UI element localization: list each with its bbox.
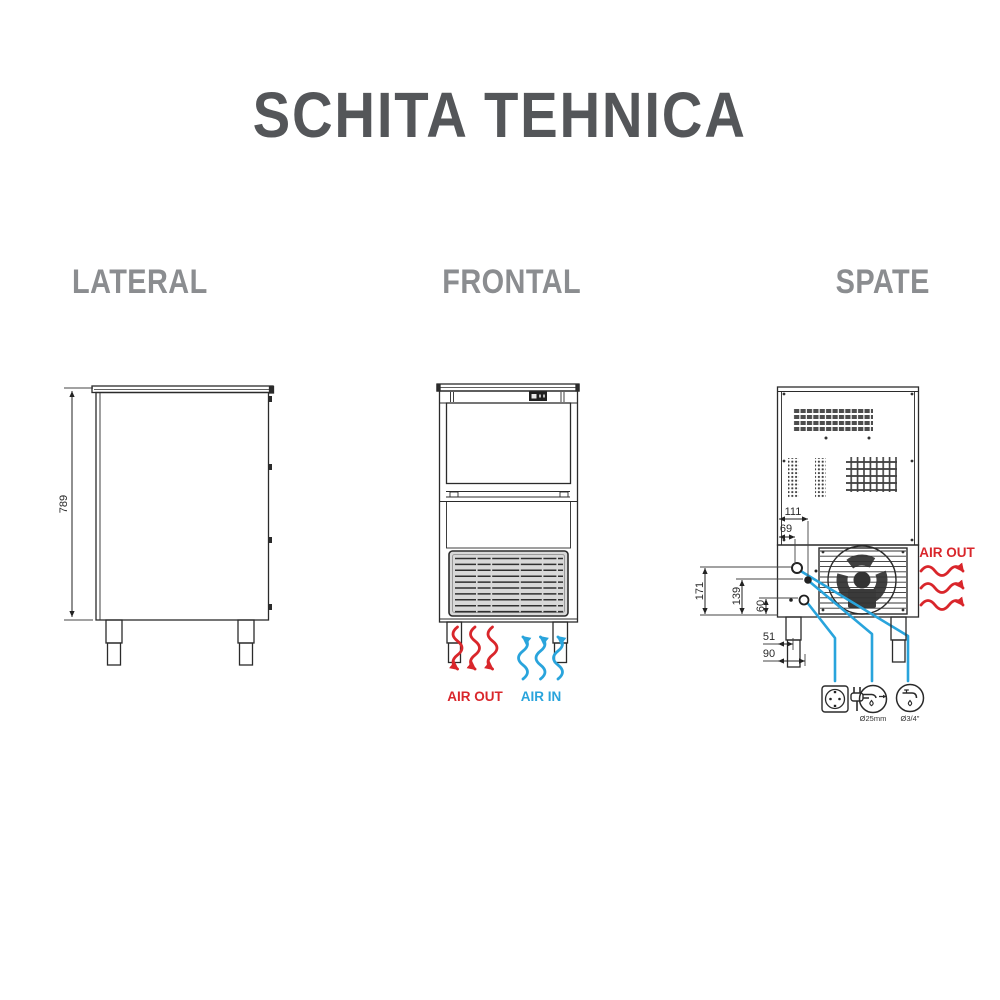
power-plug-icon xyxy=(851,687,863,711)
frontal-vent-grille xyxy=(449,551,568,616)
frontal-door-panel xyxy=(440,403,578,548)
water-tap-icon xyxy=(897,685,924,712)
dim-111-label: 111 xyxy=(785,506,802,518)
drain-connection-point xyxy=(804,576,812,584)
air-in-label-frontal: AIR IN xyxy=(521,689,562,704)
water-size-label: Ø3/4" xyxy=(901,714,920,723)
dim-139-label: 139 xyxy=(731,587,743,605)
air-out-label-spate: AIR OUT xyxy=(919,545,975,560)
spate-perforated-strip-right xyxy=(815,458,826,498)
brand-badge xyxy=(529,392,547,402)
spate-upper-cabinet xyxy=(778,387,919,545)
spate-dimensions: 111 69 171 139 60 51 90 xyxy=(694,506,808,666)
spate-lower-section xyxy=(778,545,919,617)
technical-drawing: 789 xyxy=(0,0,1000,1000)
spate-top-vent-grid xyxy=(793,407,873,431)
dim-51-label: 51 xyxy=(763,631,775,643)
air-out-label-frontal: AIR OUT xyxy=(447,689,503,704)
spate-view: 111 69 171 139 60 51 90 AIR OUT xyxy=(694,387,976,723)
technical-sheet-page: SCHITA TEHNICA LATERAL FRONTAL SPATE xyxy=(0,0,1000,1000)
condenser-fan xyxy=(819,546,907,614)
dim-789-label: 789 xyxy=(58,495,70,513)
power-connection-point xyxy=(800,596,809,605)
power-socket-icon xyxy=(822,686,848,712)
dim-171-label: 171 xyxy=(694,582,706,600)
water-connection-point xyxy=(792,563,802,573)
spate-square-vent-grid xyxy=(846,457,897,492)
air-out-arrows-spate xyxy=(921,567,963,610)
lateral-cabinet-outline xyxy=(92,386,274,620)
frontal-view: AIR OUT AIR IN xyxy=(437,384,579,704)
lateral-legs xyxy=(106,620,254,665)
spate-perforated-strip-left xyxy=(788,458,799,498)
dim-60-label: 60 xyxy=(755,600,767,612)
lateral-view: 789 xyxy=(58,386,274,665)
drain-size-label: Ø25mm xyxy=(860,714,887,723)
connection-lead-lines xyxy=(799,570,908,681)
lateral-dimension-789: 789 xyxy=(58,388,93,620)
dim-90-label: 90 xyxy=(763,648,775,660)
frontal-legs xyxy=(447,622,568,663)
dim-69-label: 69 xyxy=(780,523,792,535)
utility-icons: Ø25mm Ø3/4" xyxy=(822,685,924,724)
